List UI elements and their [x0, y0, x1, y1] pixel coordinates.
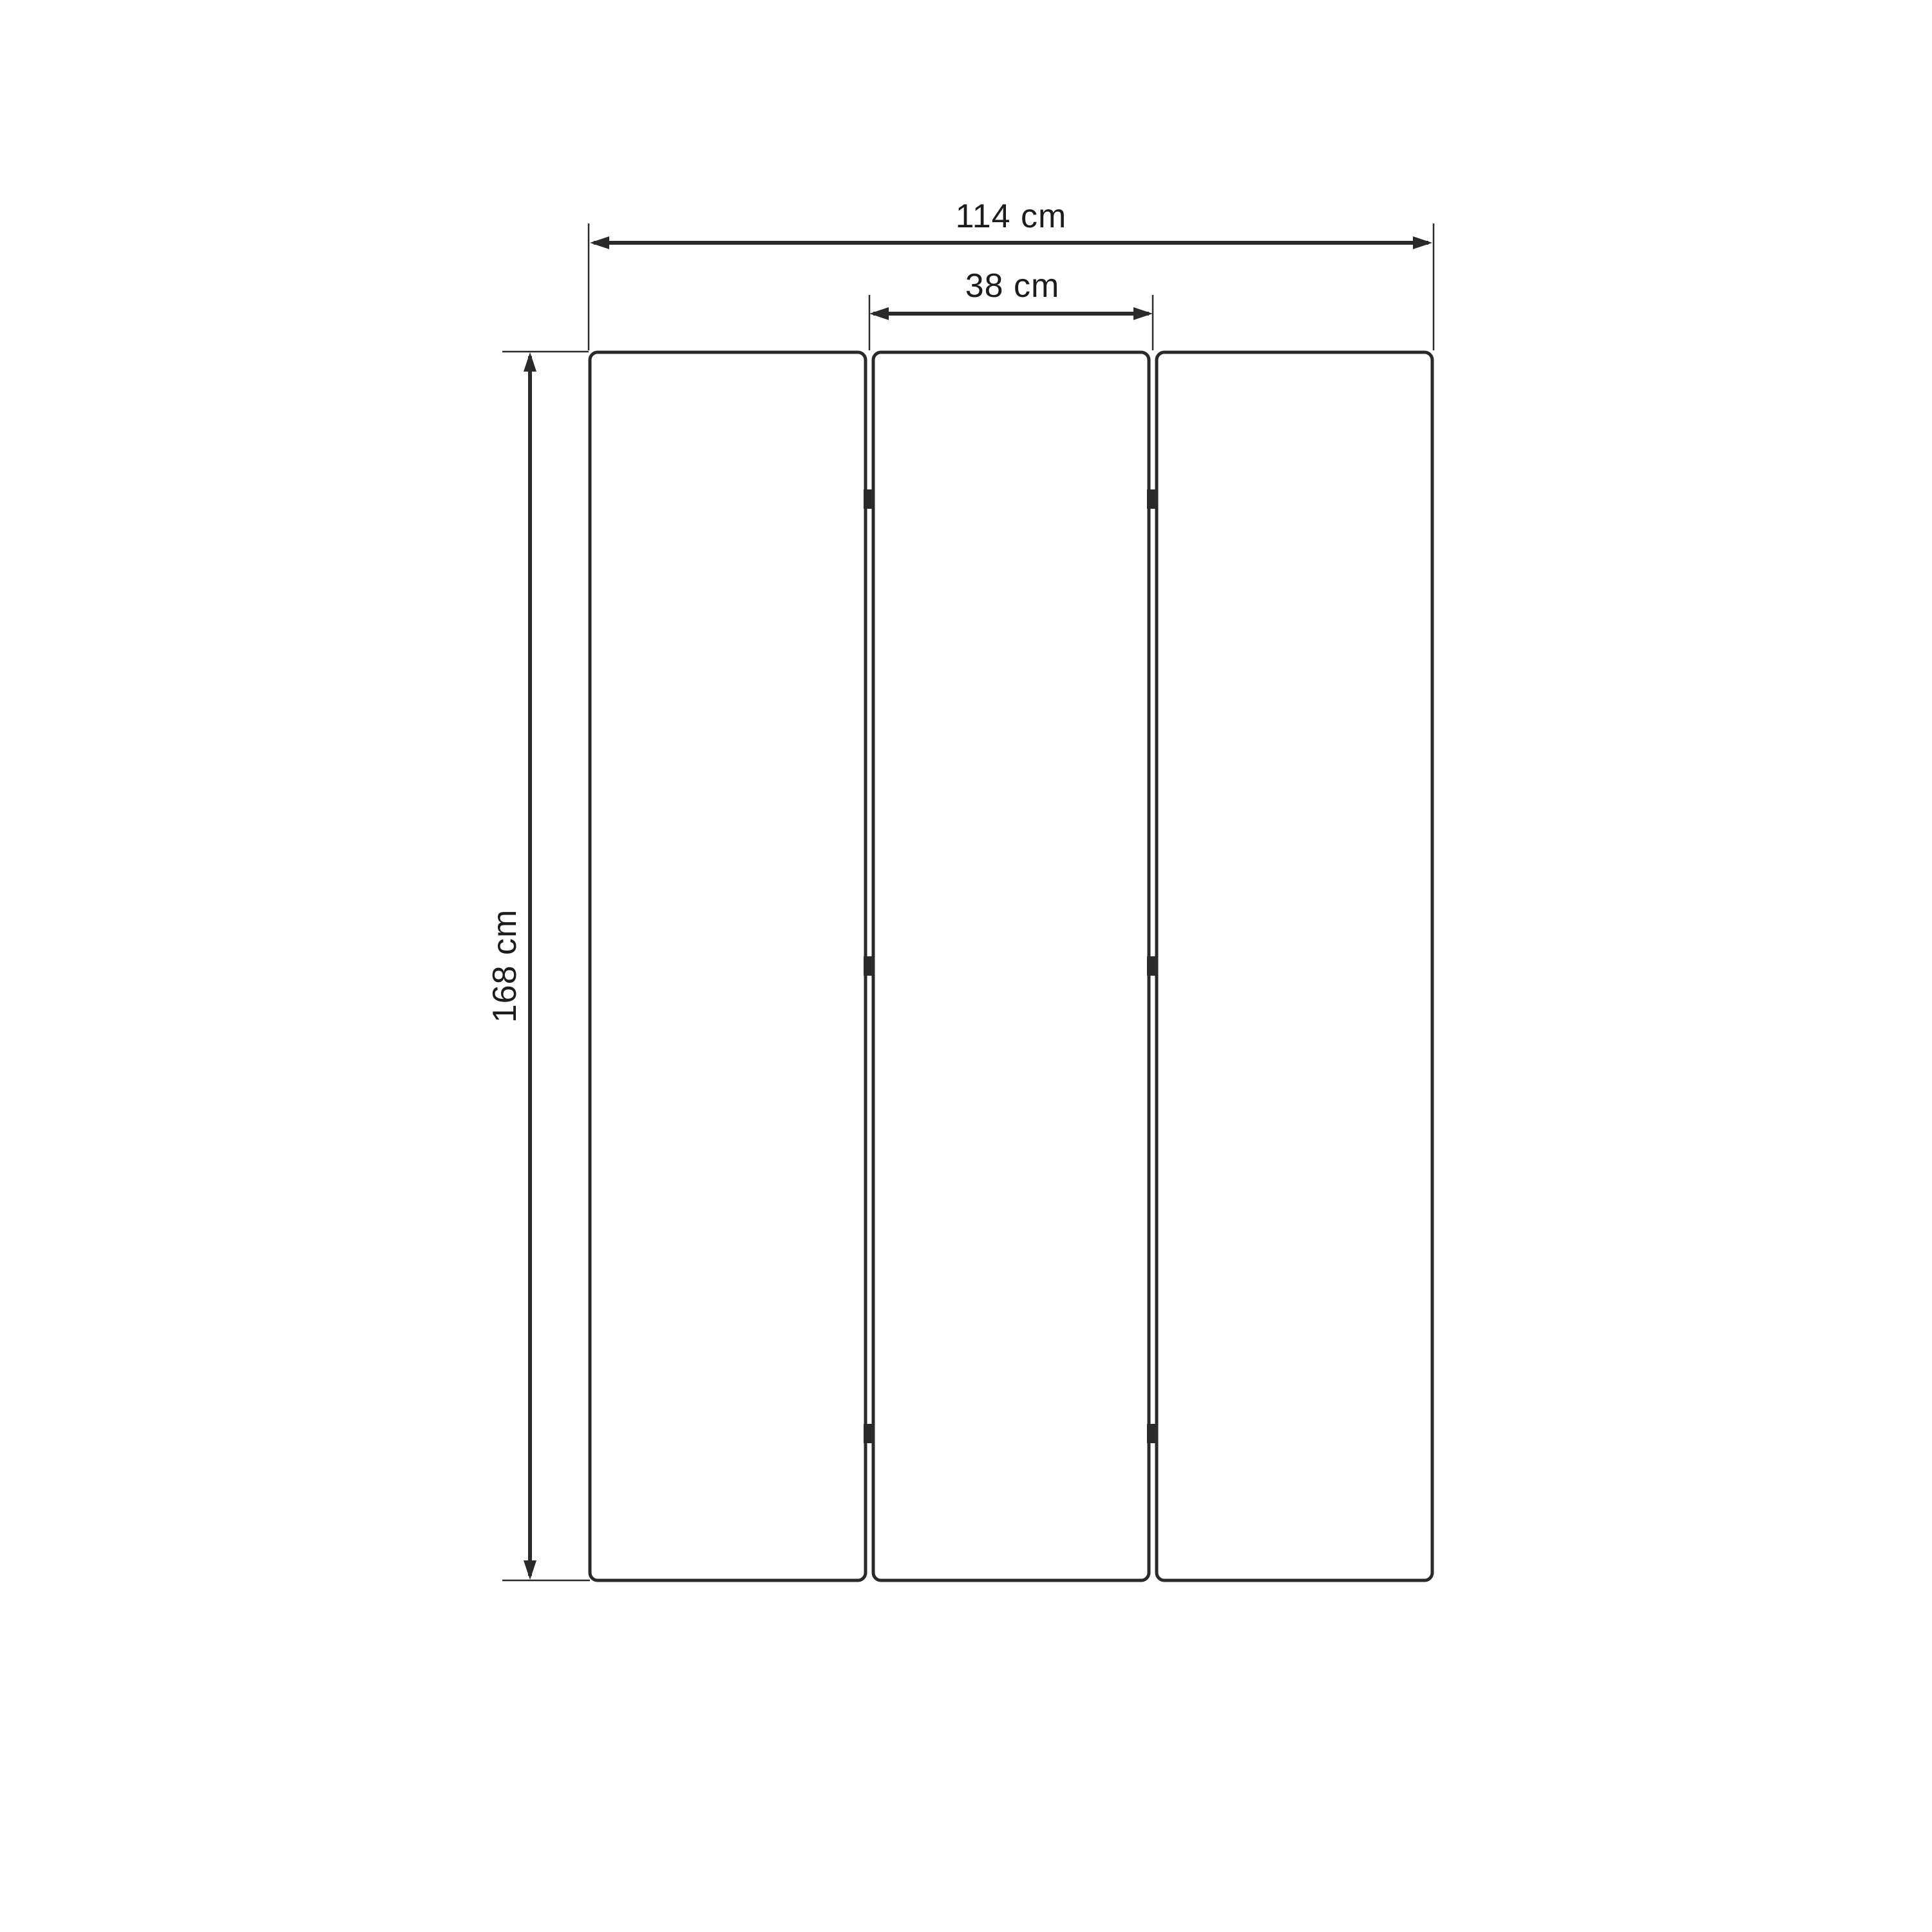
panel-width-arrow-right: [1133, 307, 1153, 320]
total-width-label: 114 cm: [956, 198, 1067, 235]
height-arrow-top: [524, 352, 536, 372]
total-width-arrow-left: [590, 236, 609, 249]
dimension-drawing: 114 cm 38 cm 168 cm: [0, 0, 1932, 1932]
hinge-right-gap-bottom: [1147, 1424, 1158, 1443]
hinge-left-gap-bottom: [864, 1424, 875, 1443]
hinge-right-gap-middle: [1147, 956, 1158, 976]
total-width-arrow-right: [1413, 236, 1432, 249]
panel-width-dimension: 38 cm: [869, 267, 1153, 350]
panel-right: [1157, 352, 1432, 1580]
hinge-left-gap-top: [864, 489, 875, 509]
panel-middle: [873, 352, 1149, 1580]
panel-left: [590, 352, 866, 1580]
height-dimension: 168 cm: [486, 352, 590, 1580]
panels: [590, 352, 1432, 1580]
panel-width-label: 38 cm: [965, 267, 1060, 305]
hinge-left-gap-middle: [864, 956, 875, 976]
hinge-right-gap-top: [1147, 489, 1158, 509]
panel-width-arrow-left: [869, 307, 889, 320]
height-arrow-bottom: [524, 1560, 536, 1580]
height-label: 168 cm: [486, 909, 524, 1023]
